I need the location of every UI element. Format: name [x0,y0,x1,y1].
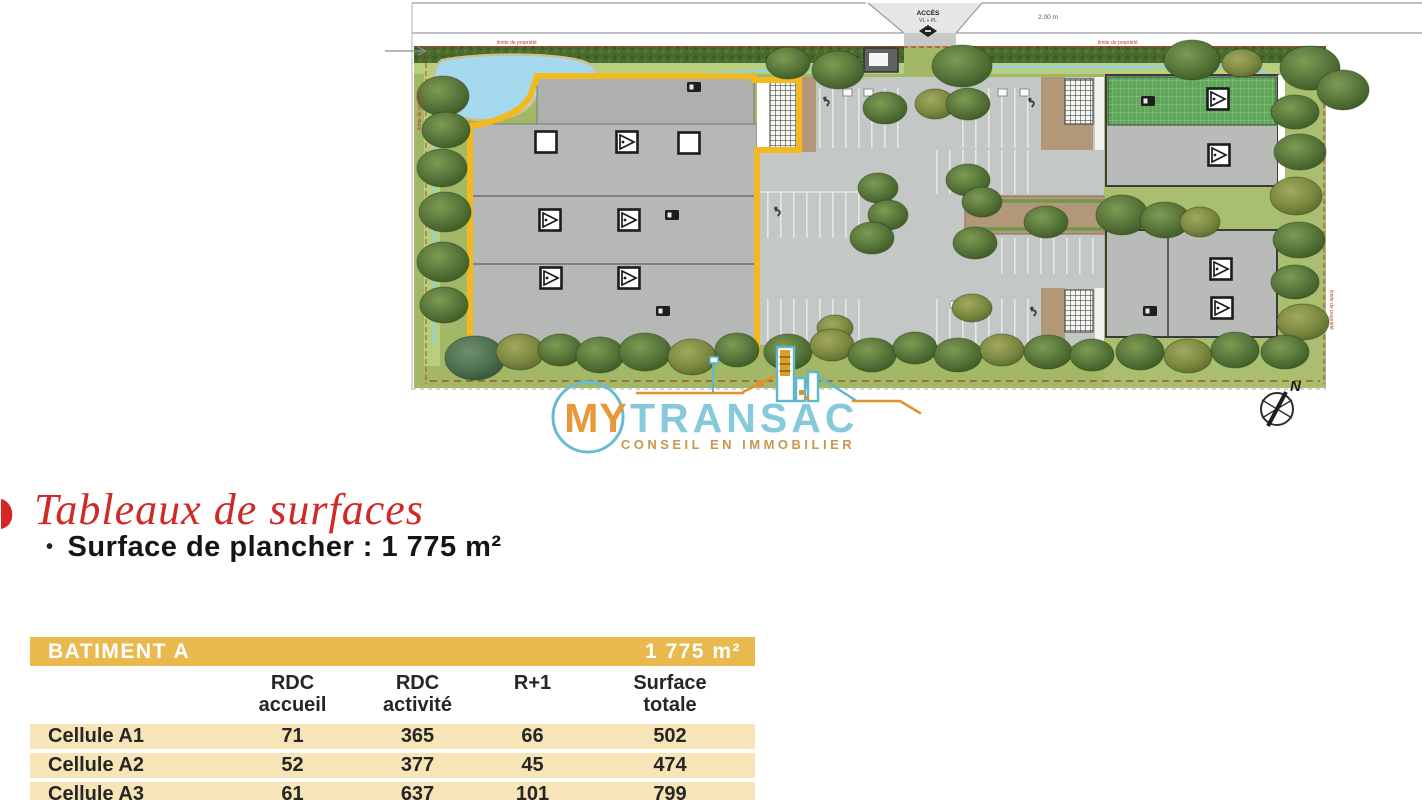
cell-value: 66 [480,725,585,748]
roof-vent-icon [656,306,670,316]
cell-value: 61 [230,783,355,800]
building-c [1106,230,1277,337]
table-total: 1 775 m² [645,640,741,664]
boundary-label: limite de propriété [417,90,423,130]
trellis-mesh [770,81,798,148]
cell-value: 377 [355,754,480,777]
cell-value: 637 [355,783,480,800]
row-label: Cellule A3 [30,783,230,800]
bin-shelter [864,48,898,72]
table-column-headers: RDCaccueil RDCactivité R+1 Surfacetotale [30,666,755,720]
table-row: Cellule A2 52 377 45 474 [30,753,755,778]
skylight-icon [1211,259,1232,280]
table-header-band: BATIMENT A 1 775 m² [30,637,755,666]
skylight-icon [1212,298,1233,319]
roof-vent-icon [665,210,679,220]
table-row: Cellule A3 61 637 101 799 [30,782,755,800]
road-width-label: 2.00 m [1038,14,1058,21]
skylight-icon [540,210,561,231]
skylight-icon [617,132,638,153]
shelter-mesh [1065,290,1093,332]
access-label: ACCÈS [917,8,940,17]
logo-word-my: MY [564,395,628,441]
col-header-rdc-accueil: RDCaccueil [230,672,355,716]
subtitle-bullet: • [46,536,54,559]
cell-value: 365 [355,725,480,748]
col-header-rdc-activite: RDCactivité [355,672,480,716]
access-type-label: VL + PL [919,18,937,24]
section-bullet-icon [0,498,20,530]
cell-value: 799 [585,783,755,800]
skylight-icon [1208,89,1229,110]
logo-word-transac: TRANSAC [630,395,858,441]
col-header-r1: R+1 [480,672,585,716]
boundary-label: limite de propriété [1328,290,1334,330]
surface-subtitle: • Surface de plancher : 1 775 m² [46,531,502,564]
cell-value: 45 [480,754,585,777]
compass-north-label: N [1290,378,1302,395]
building-b [1106,75,1285,186]
skylight-icon [541,268,562,289]
site-plan: limite de propriété limite de propriété … [0,0,1422,470]
boundary-label: limite de propriété [1098,40,1138,46]
shelter-mesh [1065,79,1093,124]
cell-value: 52 [230,754,355,777]
brochure-page: limite de propriété limite de propriété … [0,0,1422,800]
table-row: Cellule A1 71 365 66 502 [30,724,755,749]
cell-value: 71 [230,725,355,748]
cell-value: 502 [585,725,755,748]
roof-vent-icon [1143,306,1157,316]
skylight-icon [536,132,557,153]
page-title: Tableaux de surfaces [34,486,424,534]
row-label: Cellule A1 [30,725,230,748]
table-title: BATIMENT A [48,640,190,664]
cell-value: 101 [480,783,585,800]
roof-vent-icon [687,82,701,92]
subtitle-text: Surface de plancher : 1 775 m² [68,531,502,564]
roof-vent-icon [1141,96,1155,106]
boundary-label: limite de propriété [497,40,537,46]
row-label: Cellule A2 [30,754,230,777]
col-header-surface-totale: Surfacetotale [585,672,755,716]
surface-table: BATIMENT A 1 775 m² RDCaccueil RDCactivi… [30,637,755,800]
cell-value: 474 [585,754,755,777]
logo-tagline: CONSEIL EN IMMOBILIER [621,437,855,452]
skylight-icon [1209,145,1230,166]
skylight-icon [679,133,700,154]
skylight-icon [619,210,640,231]
skylight-icon [619,268,640,289]
